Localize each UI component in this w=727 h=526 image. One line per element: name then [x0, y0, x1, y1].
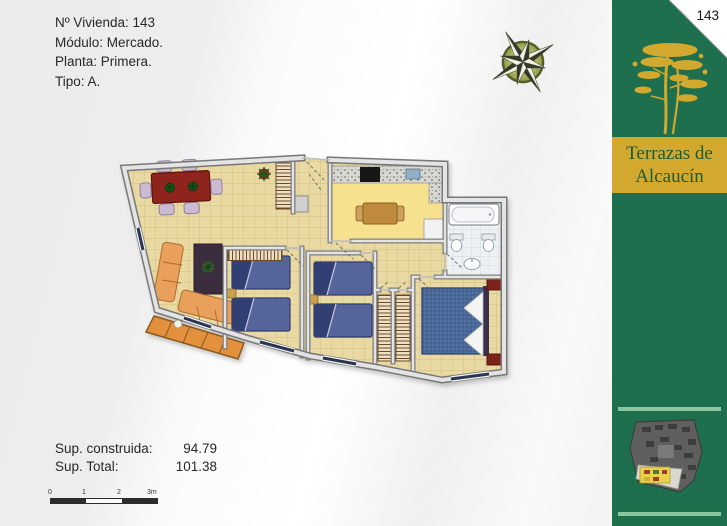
stat-row: Sup. Total: 101.38 — [55, 458, 217, 476]
unit-module: Módulo: Mercado. — [55, 33, 163, 53]
compass-rose-icon — [483, 22, 563, 102]
accent-bar — [618, 407, 721, 411]
headboard — [483, 286, 489, 356]
kitchen-sink — [406, 169, 420, 179]
bidet — [482, 234, 495, 252]
bathroom-sink — [464, 259, 480, 270]
scale-tick: 1 — [82, 489, 86, 496]
bed — [314, 262, 372, 295]
room-bathroom — [447, 202, 502, 276]
brand-title-line1: Terrazas de — [626, 142, 713, 165]
stat-value: 101.38 — [167, 458, 217, 476]
unit-number: Nº Vivienda: 143 — [55, 13, 163, 33]
scale-tick: 2 — [117, 489, 121, 496]
tree-logo-icon — [615, 16, 725, 136]
rug-plant — [202, 261, 214, 273]
nightstand — [487, 354, 501, 365]
accent-bar — [618, 512, 721, 516]
stat-value: 94.79 — [167, 440, 217, 458]
stove — [360, 167, 380, 182]
unit-type: Tipo: A. — [55, 72, 163, 92]
scale-tick: 0 — [48, 489, 52, 496]
bathtub — [449, 204, 499, 225]
site-plan-thumbnail — [624, 418, 715, 508]
scale-tick: 3m — [147, 489, 157, 496]
entry-plant — [257, 167, 271, 181]
toilet — [450, 234, 463, 252]
unit-floor: Planta: Primera. — [55, 52, 163, 72]
wardrobe-bedroom-2 — [378, 295, 392, 361]
bed — [232, 298, 290, 331]
room-kitchen — [332, 166, 443, 241]
wardrobe-master — [396, 295, 410, 361]
entry-closet — [276, 163, 292, 209]
brochure-page: Nº Vivienda: 143 Módulo: Mercado. Planta… — [0, 0, 727, 526]
stat-label: Sup. Total: — [55, 458, 167, 476]
scale-bar: 0 1 2 3m — [48, 489, 166, 507]
floor-plan — [112, 140, 522, 402]
kitchen-counter — [332, 166, 443, 183]
stat-label: Sup. construida: — [55, 440, 167, 458]
fridge — [424, 219, 443, 240]
floor-lamp — [174, 320, 182, 328]
scale-bar-line — [50, 498, 158, 504]
nightstand — [227, 289, 236, 298]
stat-row: Sup. construida: 94.79 — [55, 440, 217, 458]
nightstand — [487, 279, 501, 290]
dining-table — [151, 171, 210, 204]
brand-title-box: Terrazas de Alcaucín — [612, 137, 727, 193]
brand-title-line2: Alcaucín — [635, 165, 704, 188]
surface-stats: Sup. construida: 94.79 Sup. Total: 101.3… — [55, 440, 217, 475]
brand-banner: 143 Terrazas de Alcaucín — [612, 0, 727, 526]
unit-info-block: Nº Vivienda: 143 Módulo: Mercado. Planta… — [55, 13, 163, 91]
wardrobe-bedroom-1 — [228, 250, 282, 261]
kitchen-table — [356, 203, 404, 224]
bed — [314, 304, 372, 337]
